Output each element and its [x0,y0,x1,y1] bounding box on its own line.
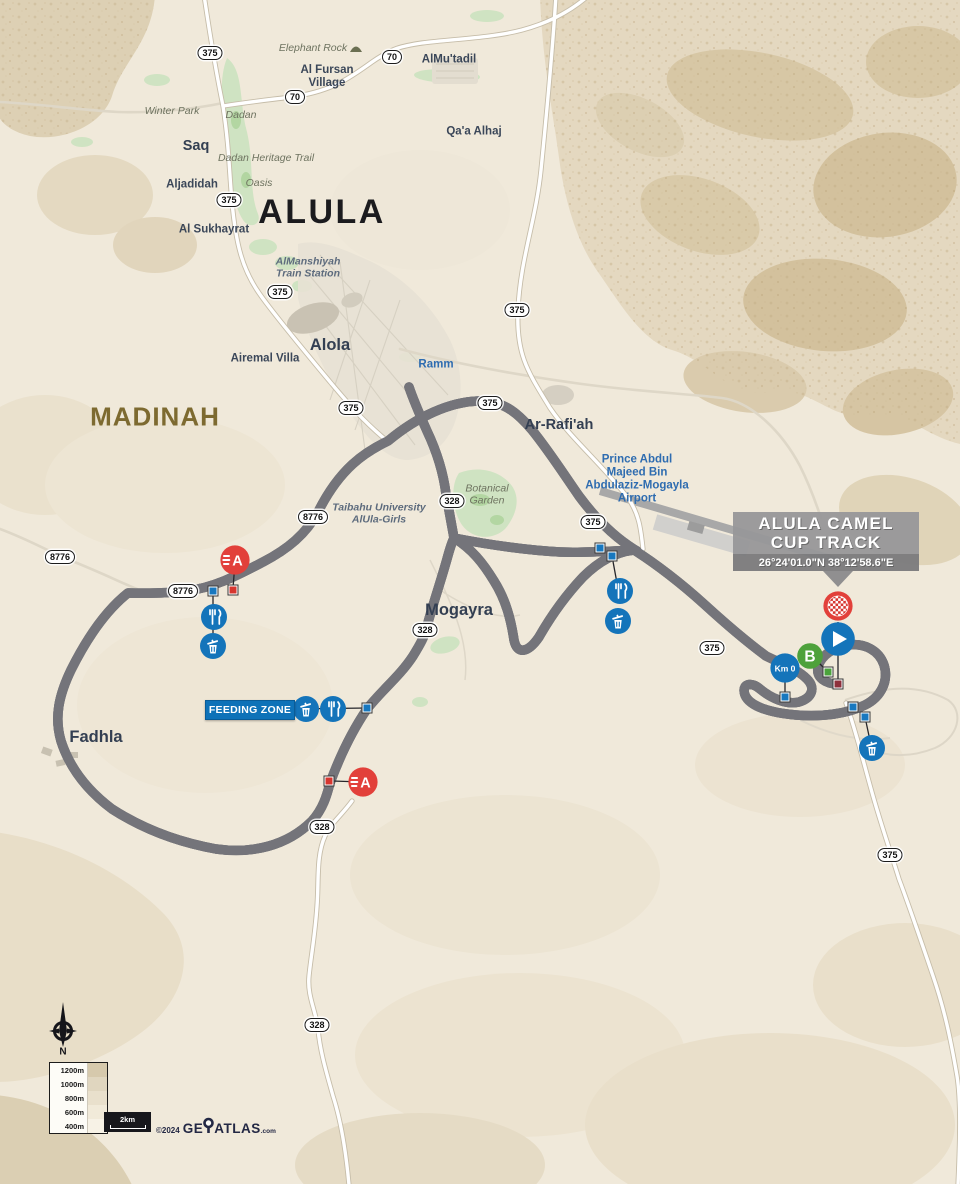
finish-panel: ALULA CAMEL CUP TRACK 26°24'01.0"N 38°12… [733,512,919,587]
finish-coordinates: 26°24'01.0"N 38°12'58.6"E [733,554,919,571]
road-shield-8776: 8776 [298,510,328,524]
finish-panel-line2: CUP TRACK [733,534,919,553]
feeding-zone-label: FEEDING ZONE [205,700,295,720]
elevation-row: 1200m [50,1063,107,1077]
elevation-row: 400m [50,1119,107,1133]
scale-bracket [110,1125,146,1129]
route-marker-square-red [229,586,238,595]
finish-panel-pointer [823,571,853,587]
elevation-label: 1200m [50,1063,87,1077]
route-marker-square-blue [849,703,858,712]
brand-text-suffix: ATLAS [214,1121,261,1136]
route-marker-square-blue [608,552,617,561]
geoatlas-o-icon [203,1117,214,1133]
route-marker-square-blue [781,693,790,702]
route-marker-square-blue [209,587,218,596]
scale-bar: 2km [104,1112,151,1132]
elevation-label: 600m [50,1105,87,1119]
copyright-text: ©2024 [156,1126,180,1135]
road-shield-375: 375 [216,193,241,207]
road-shield-8776: 8776 [168,584,198,598]
road-shield-70: 70 [382,50,402,64]
road-shield-375: 375 [477,396,502,410]
elevation-label: 400m [50,1119,87,1133]
elevation-row: 800m [50,1091,107,1105]
road-shield-328: 328 [309,820,334,834]
road-shield-375: 375 [267,285,292,299]
route-marker-square-green [824,668,833,677]
brand-tld: .com [261,1128,276,1135]
map-canvas [0,0,960,1184]
route-marker-square-dark [834,680,843,689]
road-shield-328: 328 [412,623,437,637]
road-shield-375: 375 [338,401,363,415]
brand-text-prefix: GE [183,1121,204,1136]
elevation-swatch [87,1077,107,1091]
elevation-swatch [87,1063,107,1077]
elevation-row: 1000m [50,1077,107,1091]
compass-needle-icon [46,1000,82,1050]
road-shield-70: 70 [285,90,305,104]
road-shield-375: 375 [504,303,529,317]
road-shield-375: 375 [197,46,222,60]
elevation-legend: 1200m1000m800m600m400m [49,1062,108,1134]
elevation-swatch [87,1091,107,1105]
route-marker-square-blue [861,713,870,722]
road-shield-328: 328 [439,494,464,508]
scale-label: 2km [120,1116,135,1124]
route-marker-square-blue [363,704,372,713]
route-marker-square-blue [596,544,605,553]
road-shield-375: 375 [580,515,605,529]
road-shield-328: 328 [304,1018,329,1032]
elevation-label: 800m [50,1091,87,1105]
road-shield-375: 375 [877,848,902,862]
finish-panel-line1: ALULA CAMEL [733,515,919,534]
elevation-label: 1000m [50,1077,87,1091]
route-marker-square-red [325,777,334,786]
map-credit: ©2024 GE ATLAS .com [156,1117,276,1136]
road-shield-8776: 8776 [45,550,75,564]
route-map: Elephant RockAl Fursan VillageAlMu'tadil… [0,0,960,1184]
elevation-row: 600m [50,1105,107,1119]
road-shield-375: 375 [699,641,724,655]
north-label: N [59,1047,66,1058]
